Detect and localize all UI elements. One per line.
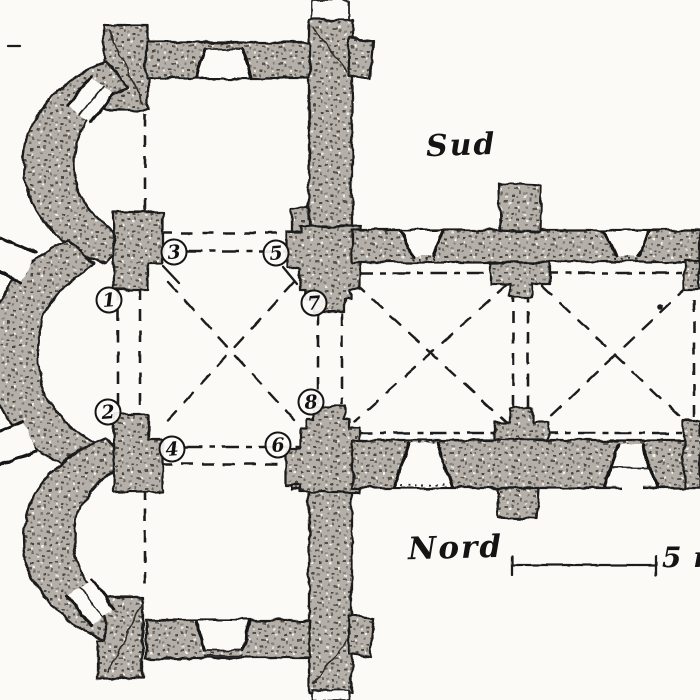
scale-bar bbox=[512, 556, 656, 575]
buttress-tower-south bbox=[349, 38, 373, 79]
leader-marker-5 bbox=[283, 267, 297, 284]
label-nord: Nord bbox=[408, 529, 504, 567]
floor-plan-canvas: Sud Nord 5 m 12345678 bbox=[0, 0, 700, 700]
scale-bar-label: 5 m bbox=[662, 541, 700, 574]
tower-north-cap bbox=[312, 690, 349, 700]
pilaster-nave-south-east bbox=[684, 260, 700, 290]
buttress-tower-north bbox=[349, 616, 374, 657]
pilaster-nave-north bbox=[494, 408, 549, 440]
wall-layer bbox=[0, 0, 700, 700]
tower-south-cap bbox=[312, 0, 349, 21]
window-nave-north-2-slit bbox=[623, 483, 644, 490]
floor-plan-drawing bbox=[0, 0, 700, 700]
buttress-nave-south bbox=[499, 184, 541, 232]
pier-4-mass bbox=[113, 414, 163, 492]
vault-line-layer bbox=[118, 114, 700, 588]
pier-3-mass bbox=[113, 212, 163, 290]
pier-crossing-se bbox=[286, 406, 360, 492]
buttress-nave-north bbox=[497, 488, 539, 519]
label-sud: Sud bbox=[425, 127, 497, 164]
keystone-dot bbox=[657, 304, 663, 310]
leader-marker-3 bbox=[163, 266, 179, 283]
wall-tower-south bbox=[309, 20, 352, 250]
pilaster-nave-north-east bbox=[684, 420, 700, 488]
